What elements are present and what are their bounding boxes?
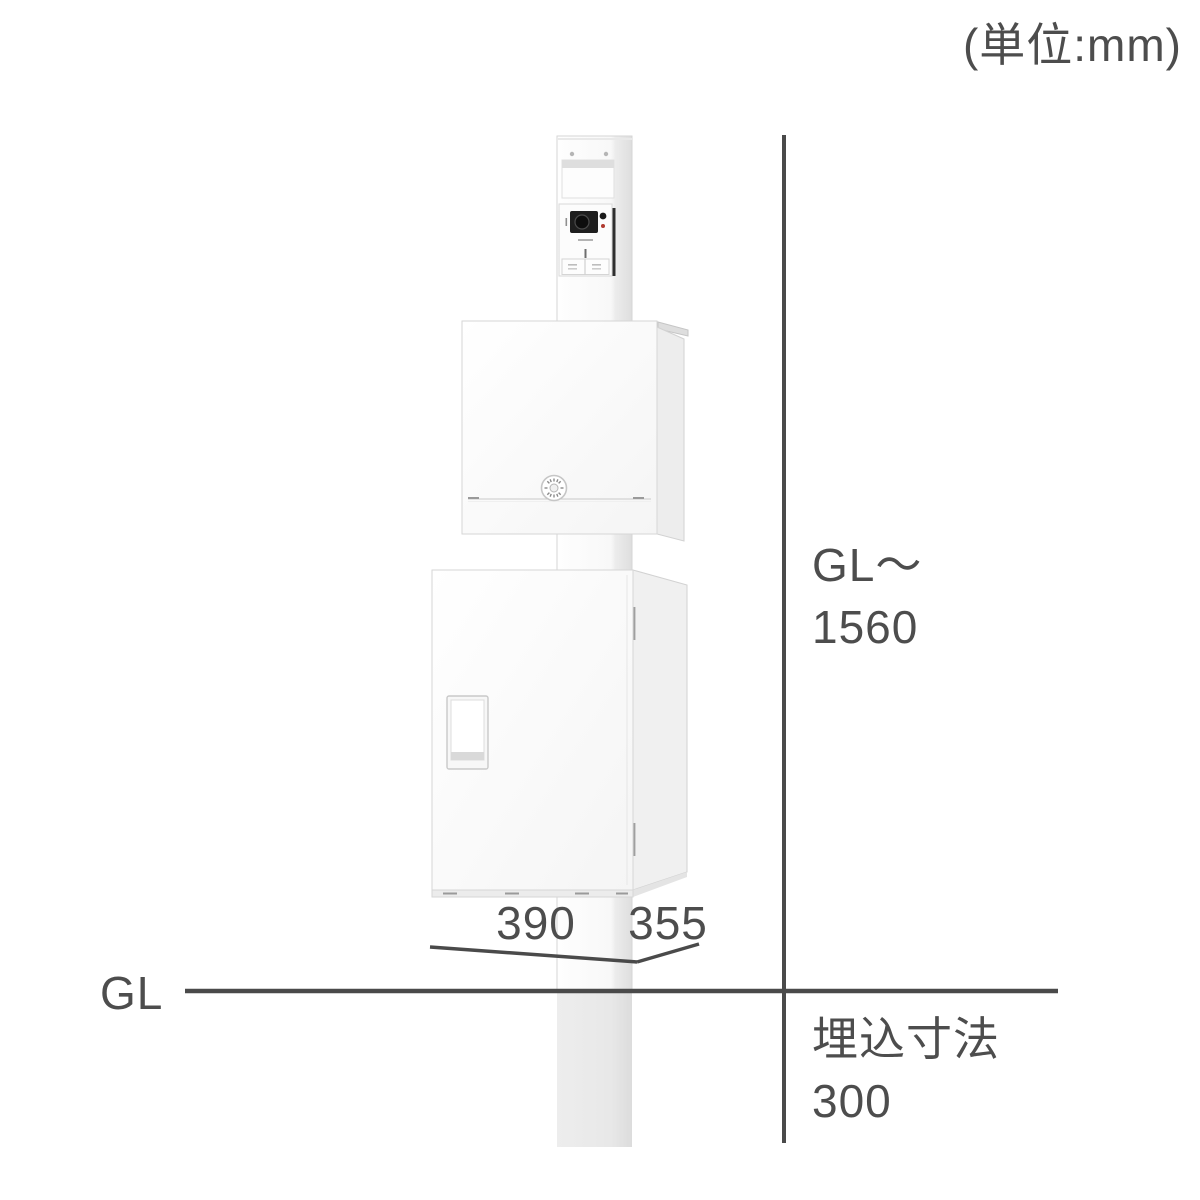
width-dimension-value: 390 [470, 892, 602, 954]
burial-dimension-label: 埋込寸法 300 [812, 1008, 1000, 1132]
unit-note: (単位:mm) [963, 14, 1182, 76]
delivery-box [432, 570, 687, 897]
height-dimension-label: GL〜 1560 [812, 534, 922, 658]
buried-post-section [557, 991, 632, 1147]
nameplate-shadow [562, 160, 614, 168]
flap-hinge-mark [633, 497, 644, 499]
dimension-diagram: (単位:mm) GL〜 1560 390 355 GL 埋込寸法 300 [0, 0, 1200, 1200]
sensor-icon [600, 213, 607, 220]
height-dimension-from: GL〜 [812, 534, 922, 596]
button-label-mark [592, 264, 601, 266]
led-indicator-icon [601, 224, 605, 228]
button-label-mark [592, 268, 601, 270]
button-label-mark [568, 264, 577, 266]
mail-post-box [462, 321, 688, 541]
dial-lock [542, 476, 567, 501]
door-handle-recess [447, 696, 488, 769]
flap-hinge-mark [468, 497, 479, 499]
button-label-mark [568, 268, 577, 270]
depth-dimension-value: 355 [602, 892, 734, 954]
handle-pull-strip [451, 752, 484, 760]
height-dimension-value: 1560 [812, 596, 922, 658]
speaker-slit-icon [566, 218, 568, 226]
doorphone-camera-unit [559, 204, 616, 276]
delivery-box-side-face [633, 570, 687, 890]
mailbox-side-face [657, 327, 684, 541]
product-drawing [0, 0, 1200, 1200]
brand-mark [578, 239, 593, 241]
camera-lens-icon [575, 215, 589, 229]
mailbox-front-door [462, 321, 657, 534]
burial-dimension-title: 埋込寸法 [812, 1008, 1000, 1070]
mic-slit-icon [585, 249, 587, 258]
base-foot-mark [443, 893, 457, 895]
screw-icon [570, 152, 574, 156]
screw-icon [604, 152, 608, 156]
ground-level-label: GL [100, 962, 163, 1024]
burial-dimension-value: 300 [812, 1070, 1000, 1132]
